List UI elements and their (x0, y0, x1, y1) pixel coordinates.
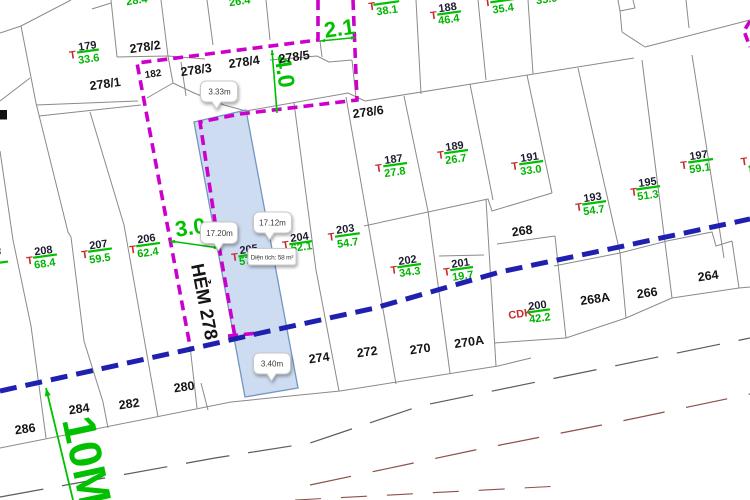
svg-text:3.40m: 3.40m (261, 360, 284, 369)
svg-text:Diện tích: 58 m²: Diện tích: 58 m² (251, 255, 295, 262)
svg-text:270: 270 (409, 341, 432, 358)
svg-text:3.33m: 3.33m (208, 88, 231, 97)
svg-text:17.20m: 17.20m (206, 229, 233, 238)
svg-text:282: 282 (118, 396, 141, 413)
svg-text:284: 284 (68, 401, 91, 418)
svg-text:280: 280 (173, 379, 196, 396)
svg-text:268: 268 (511, 223, 534, 240)
svg-text:264: 264 (697, 268, 720, 285)
svg-text:272: 272 (356, 344, 379, 361)
svg-text:286: 286 (14, 421, 37, 438)
svg-text:274: 274 (308, 350, 331, 367)
svg-text:2.1: 2.1 (322, 14, 356, 43)
svg-text:17.12m: 17.12m (259, 219, 286, 228)
svg-text:266: 266 (636, 285, 659, 302)
svg-text:8: 8 (0, 246, 1, 258)
